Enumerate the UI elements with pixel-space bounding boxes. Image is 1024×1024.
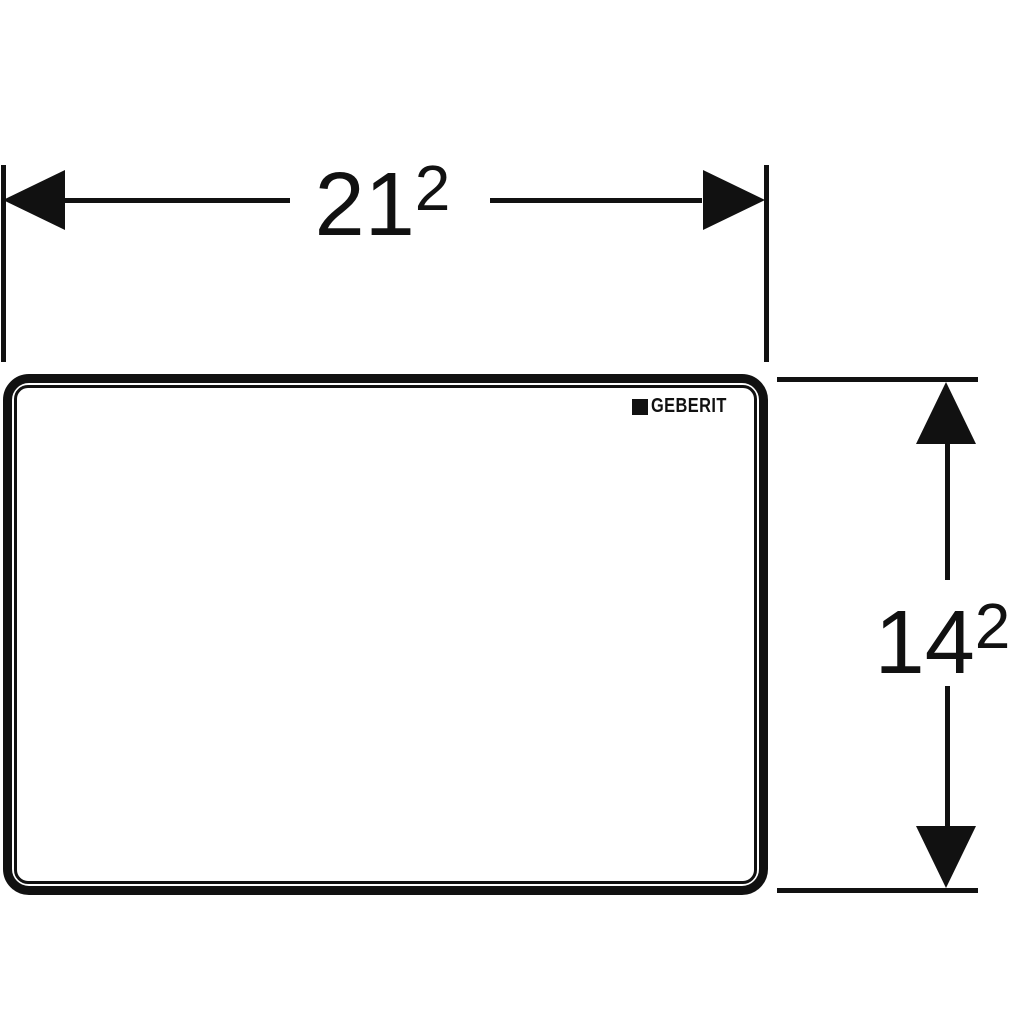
width-arrow-left-icon	[3, 170, 65, 230]
width-dimension-label: 212	[285, 160, 480, 250]
flush-plate-inner-frame	[14, 385, 757, 884]
width-dimension-line-left-segment	[58, 198, 290, 203]
geberit-logo-text: GEBERIT	[651, 398, 727, 415]
height-dimension-line-lower-segment	[945, 686, 950, 828]
geberit-logo-square-icon	[632, 399, 648, 415]
height-dimension-label: 142	[845, 598, 1024, 688]
height-dimension-line-upper-segment	[945, 440, 950, 580]
width-dimension-superscript: 2	[415, 152, 451, 224]
technical-drawing: 212 GEBERIT 142	[0, 0, 1024, 1024]
flush-plate-outer-frame: GEBERIT	[3, 374, 768, 895]
height-dimension-superscript: 2	[975, 590, 1011, 662]
height-arrow-up-icon	[916, 382, 976, 444]
geberit-logo: GEBERIT	[632, 398, 743, 415]
height-arrow-down-icon	[916, 826, 976, 888]
width-dimension-value: 21	[315, 155, 415, 255]
width-dimension-line-right-segment	[490, 198, 702, 203]
width-arrow-right-icon	[703, 170, 765, 230]
height-dimension-value: 14	[875, 593, 975, 693]
height-extension-line-bottom	[777, 888, 978, 893]
